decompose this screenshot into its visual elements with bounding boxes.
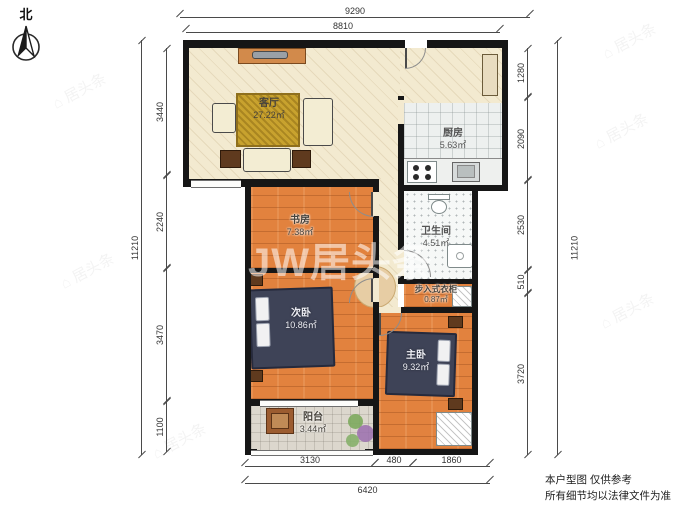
wall-left-main [245, 179, 251, 455]
watermark-tile: ⌂ 居头条 [48, 68, 109, 114]
wall-top-right [427, 40, 508, 48]
dim-right-seg-3: 2530 [527, 180, 528, 270]
master-nightstand-top [448, 316, 463, 328]
balcony-plant-2 [357, 425, 374, 442]
balcony-label: 阳台 3.44㎡ [284, 412, 342, 434]
balcony-sliding-door [260, 400, 358, 407]
second-bedroom-label: 次卧 10.86㎡ [270, 308, 332, 330]
wall-master-right [472, 307, 478, 455]
tv [252, 51, 288, 59]
sofa-main [243, 148, 291, 172]
master-wardrobe [436, 412, 472, 446]
kitchen-sink-basin [457, 165, 475, 178]
watermark-center: JW居头条 [248, 230, 433, 288]
kitchen-door-opening [398, 100, 404, 124]
dim-bottom-seg-1: 3130 [245, 466, 375, 467]
disclaimer: 本户型图 仅供参考 所有细节均以法律文件为准 [545, 472, 679, 505]
watermark-tile: ⌂ 居头条 [598, 18, 659, 64]
dim-right-seg-1: 1280 [527, 48, 528, 97]
north-label: 北 [4, 4, 48, 23]
living-room-label: 客厅 27.22㎡ [240, 98, 298, 120]
balcony-window [251, 450, 373, 456]
toilet-bowl [431, 200, 447, 214]
watermark-tile: ⌂ 居头条 [56, 248, 117, 294]
balcony-plant-3 [346, 434, 359, 447]
entry-door-opening [405, 40, 427, 48]
dim-top-inner: 8810 [186, 32, 500, 33]
side-table-right [292, 150, 311, 168]
compass-north: 北 [4, 4, 48, 70]
kitchen-label: 厨房 5.63㎡ [408, 128, 498, 150]
armchair [212, 103, 236, 133]
compass-needle-icon [7, 23, 45, 65]
dim-bottom-seg-2: 480 [375, 466, 413, 467]
side-table-left [220, 150, 241, 168]
disclaimer-line-2: 所有细节均以法律文件为准 [545, 488, 679, 504]
disclaimer-line-1: 本户型图 仅供参考 [545, 472, 679, 488]
dim-right-seg-2: 2090 [527, 97, 528, 180]
dim-top-outer: 9290 [180, 17, 530, 18]
wall-right-upper [502, 40, 508, 191]
sofa-side [303, 98, 333, 146]
stove [407, 161, 437, 183]
dim-bottom-seg-3: 1860 [413, 466, 490, 467]
dim-right-outer: 11210 [557, 40, 558, 455]
second-bedroom-pillow-1 [255, 297, 270, 321]
shower-drain-icon [456, 252, 464, 260]
dim-left-outer: 11210 [141, 40, 142, 455]
watermark-tile: ⌂ 居头条 [590, 108, 651, 154]
watermark-tile: ⌂ 居头条 [596, 288, 657, 334]
wall-study-top [245, 179, 379, 187]
dim-right-seg-5: 3720 [527, 293, 528, 455]
wall-kitchen-bottom [398, 185, 508, 191]
dim-left-seg-2: 2240 [166, 175, 167, 268]
stove-burners-icon [408, 162, 436, 182]
master-bedroom-label: 主卧 9.32㎡ [388, 350, 444, 372]
master-nightstand-bottom [448, 398, 463, 410]
wall-bath-right [472, 191, 478, 284]
dim-left-seg-1: 3440 [166, 48, 167, 175]
living-window [191, 180, 241, 188]
dim-bottom-outer: 6420 [245, 483, 490, 484]
dim-left-seg-3: 3470 [166, 268, 167, 401]
wall-top-left [183, 40, 405, 48]
hall-cabinet [482, 54, 498, 96]
second-bedroom-pillow-2 [256, 323, 271, 347]
dim-right-seg-4: 510 [527, 270, 528, 293]
wall-left-upper [183, 40, 189, 187]
wall-master-bottom [373, 449, 478, 455]
